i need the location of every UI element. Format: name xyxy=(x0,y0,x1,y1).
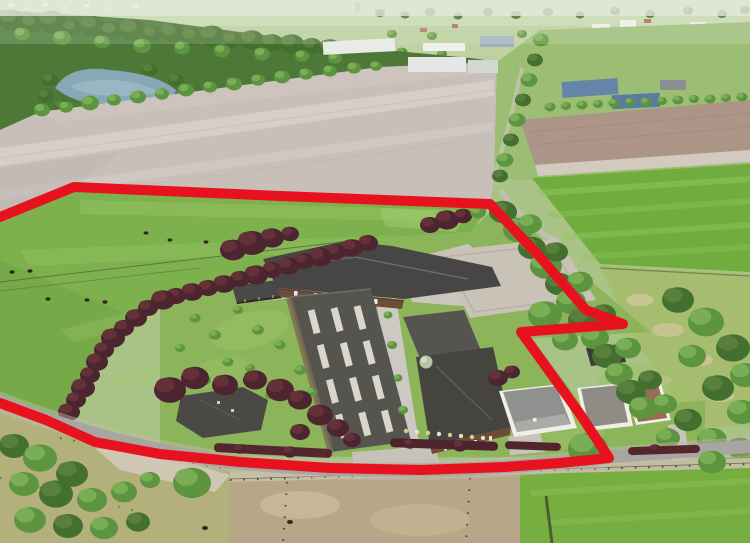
solar-roof-barn xyxy=(612,93,661,109)
aerial-photo xyxy=(0,0,750,543)
atmospheric-haze xyxy=(0,0,750,44)
greenhouse xyxy=(408,57,466,72)
lone-tree xyxy=(173,468,211,498)
aerial-photo-stage xyxy=(0,0,750,543)
